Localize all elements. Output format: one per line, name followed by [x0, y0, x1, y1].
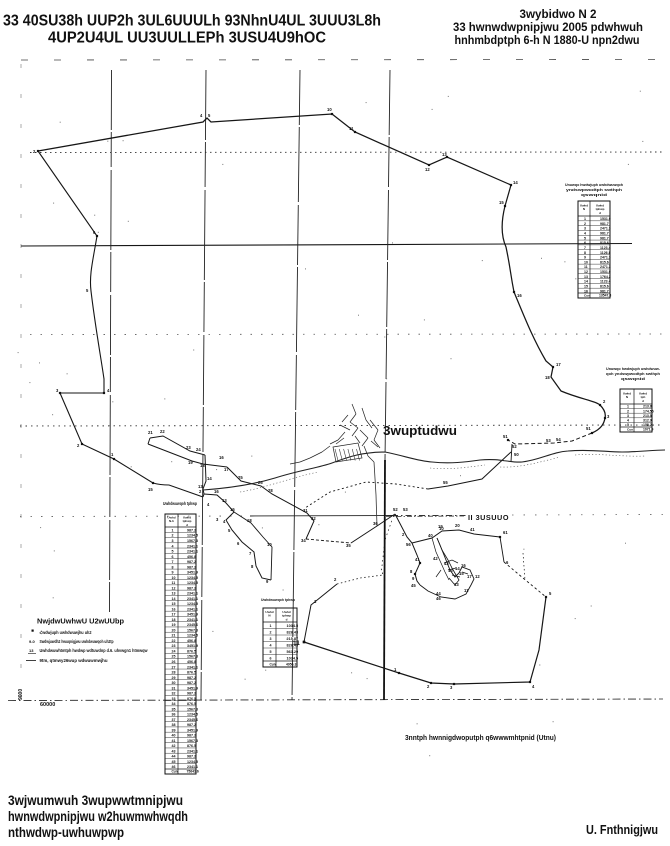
svg-text:41: 41 — [470, 527, 475, 532]
svg-text:23: 23 — [186, 445, 191, 450]
svg-text:158.2: 158.2 — [643, 423, 652, 427]
svg-text:13: 13 — [442, 152, 447, 157]
svg-text:26: 26 — [172, 660, 176, 664]
svg-text:987.2: 987.2 — [187, 755, 196, 759]
svg-text:45: 45 — [172, 760, 176, 764]
svg-text:5: 5 — [627, 423, 629, 427]
svg-text:1567.3: 1567.3 — [187, 628, 198, 632]
svg-text:N: N — [268, 614, 270, 618]
svg-text:9000: 9000 — [18, 689, 24, 700]
svg-text:11: 11 — [584, 265, 588, 269]
svg-text:15: 15 — [230, 507, 235, 512]
svg-text:12: 12 — [475, 574, 480, 579]
svg-text:13: 13 — [584, 275, 588, 279]
svg-text:2471.3: 2471.3 — [600, 265, 611, 269]
svg-text:6: 6 — [172, 555, 174, 559]
svg-text:3nntph hwnnigdwoputph q6wwwmht: 3nntph hwnnigdwoputph q6wwwmhtpnid (Utnu… — [405, 735, 556, 742]
svg-text:1234.5: 1234.5 — [187, 713, 198, 717]
svg-text:29: 29 — [172, 676, 176, 680]
svg-text:11: 11 — [172, 581, 176, 585]
svg-text:15: 15 — [584, 284, 588, 288]
svg-text:987.2: 987.2 — [187, 681, 196, 685]
svg-text:Uwhdwuwqoh tphwp: Uwhdwuwqoh tphwp — [163, 501, 197, 506]
svg-text:d: d — [599, 211, 601, 215]
svg-text:Cun: Cun — [172, 770, 178, 774]
svg-text:52: 52 — [512, 444, 517, 449]
svg-text:10: 10 — [584, 260, 588, 264]
svg-text:981.7: 981.7 — [600, 232, 609, 236]
svg-text:9-0: 9-0 — [29, 639, 36, 644]
svg-text:2341.1: 2341.1 — [187, 550, 198, 554]
svg-text:45: 45 — [411, 583, 416, 588]
svg-text:1234.5: 1234.5 — [187, 534, 198, 538]
svg-text:981.7: 981.7 — [600, 222, 609, 226]
svg-text:11: 11 — [349, 126, 354, 131]
svg-text:876.5: 876.5 — [187, 697, 196, 701]
svg-text:1: 1 — [172, 528, 174, 532]
svg-text:1: 1 — [584, 217, 586, 221]
svg-text:Unuwqo hwdwjuph uwhdwuw-: Unuwqo hwdwjuph uwhdwuw- — [606, 367, 660, 371]
svg-text:3451.9: 3451.9 — [187, 728, 198, 732]
svg-text:hwnwdwpnipjwu w2huwmwhwqdh: hwnwdwpnipjwu w2huwmwhwqdh — [8, 809, 188, 824]
svg-text:25: 25 — [172, 655, 176, 659]
svg-text:1: 1 — [270, 624, 272, 628]
svg-text:876.5: 876.5 — [187, 702, 196, 706]
svg-text:815.6: 815.6 — [600, 284, 609, 288]
svg-text:3451.9: 3451.9 — [187, 644, 198, 648]
svg-text:17: 17 — [172, 613, 176, 617]
svg-text:II 3USUUO: II 3USUUO — [468, 515, 509, 522]
svg-text:32: 32 — [311, 516, 316, 521]
svg-text:10: 10 — [327, 107, 332, 112]
svg-text:826.43: 826.43 — [287, 644, 299, 648]
svg-text:5: 5 — [172, 550, 174, 554]
svg-text:Cun: Cun — [627, 428, 633, 432]
svg-text:qoh yndswpwodtph swthph: qoh yndswpwodtph swthph — [606, 372, 660, 376]
svg-text:12: 12 — [425, 167, 430, 172]
svg-text:17: 17 — [467, 574, 472, 579]
svg-text:20: 20 — [455, 523, 460, 528]
svg-text:d: d — [186, 523, 188, 527]
svg-text:826.43: 826.43 — [287, 631, 299, 635]
svg-text:41: 41 — [415, 557, 420, 562]
svg-text:987.2: 987.2 — [187, 528, 196, 532]
svg-text:1126.8: 1126.8 — [600, 251, 611, 255]
svg-text:19: 19 — [188, 460, 193, 465]
svg-text:2341.1: 2341.1 — [187, 607, 198, 611]
svg-text:1034.5: 1034.5 — [287, 657, 299, 661]
svg-text:3451.9: 3451.9 — [187, 613, 198, 617]
svg-text:3wuptudwu: 3wuptudwu — [383, 423, 457, 438]
svg-text:5: 5 — [270, 650, 272, 654]
svg-text:1567.3: 1567.3 — [187, 539, 198, 543]
svg-text:5: 5 — [584, 236, 586, 240]
svg-text:1531.9: 1531.9 — [600, 217, 611, 221]
svg-text:3: 3 — [270, 637, 272, 641]
svg-text:U. Fnthnigjwu: U. Fnthnigjwu — [586, 822, 658, 837]
svg-text:456.8: 456.8 — [187, 660, 196, 664]
svg-text:30: 30 — [172, 681, 176, 685]
svg-text:4: 4 — [270, 644, 272, 648]
svg-text:1123.4: 1123.4 — [600, 246, 611, 250]
svg-text:33 hwnwdwpnipjwu 2005 pdwhwuh: 33 hwnwdwpnipjwu 2005 pdwhwuh — [453, 20, 643, 34]
svg-text:43: 43 — [444, 561, 449, 566]
svg-text:1234.5: 1234.5 — [187, 581, 198, 585]
svg-text:3: 3 — [627, 414, 629, 418]
svg-text:N-h: N-h — [169, 519, 174, 523]
svg-text:18: 18 — [545, 375, 550, 380]
svg-text:815.6: 815.6 — [600, 241, 609, 245]
svg-text:4: 4 — [584, 232, 586, 236]
svg-text:40: 40 — [172, 734, 176, 738]
svg-text:42: 42 — [433, 556, 438, 561]
svg-text:987.2: 987.2 — [187, 586, 196, 590]
svg-text:20: 20 — [172, 628, 176, 632]
svg-text:987.2: 987.2 — [187, 560, 196, 564]
svg-text:987.2: 987.2 — [187, 734, 196, 738]
svg-text:d: d — [286, 617, 288, 621]
svg-text:31: 31 — [303, 508, 308, 513]
svg-text:2341.1: 2341.1 — [187, 597, 198, 601]
svg-text:36: 36 — [172, 713, 176, 717]
svg-text:987.2: 987.2 — [187, 723, 196, 727]
svg-text:2341.1: 2341.1 — [187, 544, 198, 548]
svg-text:qswqnid: qswqnid — [581, 193, 607, 197]
svg-text:17: 17 — [224, 467, 229, 472]
svg-text:Swdwjuwdh2 hwuqnigjwu uwhdwuwq: Swdwjuwdh2 hwuqnigjwu uwhdwuwqoh uh2tp — [40, 639, 114, 644]
svg-text:22: 22 — [160, 429, 165, 434]
svg-text:18: 18 — [247, 518, 252, 523]
svg-text:16: 16 — [219, 455, 224, 460]
svg-text:Uwhdwuwqoh tphwp: Uwhdwuwqoh tphwp — [261, 597, 295, 602]
svg-text:Unuwqo hwdwjuph uwhdwuwqoh: Unuwqo hwdwjuph uwhdwuwqoh — [565, 183, 623, 187]
svg-text:35: 35 — [346, 543, 351, 548]
svg-text:16: 16 — [172, 607, 176, 611]
svg-text:18: 18 — [200, 463, 205, 468]
svg-text:18: 18 — [172, 618, 176, 622]
svg-text:24: 24 — [196, 447, 201, 452]
svg-text:215.87: 215.87 — [287, 637, 299, 641]
svg-text:d: d — [642, 399, 644, 403]
svg-text:2345.6: 2345.6 — [187, 718, 198, 722]
svg-text:31: 31 — [172, 686, 176, 690]
svg-text:13: 13 — [448, 568, 453, 573]
svg-text:2: 2 — [270, 631, 272, 635]
svg-text:56: 56 — [406, 542, 411, 547]
svg-text:24: 24 — [172, 649, 176, 653]
svg-text:37: 37 — [172, 718, 176, 722]
svg-text:N: N — [583, 207, 585, 211]
svg-text:456.8: 456.8 — [187, 639, 196, 643]
svg-text:3wybidwo N 2: 3wybidwo N 2 — [520, 7, 597, 21]
svg-text:15: 15 — [459, 571, 464, 576]
svg-text:51: 51 — [503, 434, 508, 439]
svg-text:1234.5: 1234.5 — [187, 576, 198, 580]
svg-text:876.5: 876.5 — [187, 744, 196, 748]
svg-text:13: 13 — [172, 592, 176, 596]
svg-text:12: 12 — [584, 270, 588, 274]
svg-text:28: 28 — [172, 671, 176, 675]
svg-text:44: 44 — [172, 755, 176, 759]
svg-text:1: 1 — [627, 405, 629, 409]
svg-text:46: 46 — [172, 765, 176, 769]
svg-text:7: 7 — [172, 560, 174, 564]
svg-text:Uwhdwuwhtmtph hwdwp wdtuwdnp d: Uwhdwuwhtmtph hwdwp wdtuwdnp d.6. uhvwgn… — [40, 648, 148, 653]
svg-text:22: 22 — [172, 639, 176, 643]
svg-text:981.7: 981.7 — [600, 236, 609, 240]
svg-text:1234.5: 1234.5 — [187, 760, 198, 764]
svg-text:987.2: 987.2 — [187, 676, 196, 680]
svg-text:14: 14 — [584, 280, 588, 284]
svg-text:23: 23 — [172, 644, 176, 648]
svg-text:3: 3 — [172, 539, 174, 543]
svg-text:9tm, qtmwy26wup wdwuwmwjhu: 9tm, qtmwy26wup wdwuwmwjhu — [40, 658, 108, 663]
svg-text:75641.6: 75641.6 — [187, 770, 199, 774]
svg-text:36: 36 — [373, 521, 378, 526]
svg-text:10: 10 — [172, 576, 176, 580]
svg-text:33 40SU38h UUP2h 3UL6UUULh 93N: 33 40SU38h UUP2h 3UL6UUULh 93NhnU4UL 3UU… — [3, 13, 381, 30]
svg-text:11: 11 — [464, 588, 469, 593]
svg-text:4UP2U4UL UU3UULLEPh 3USU4U9hOC: 4UP2U4UL UU3UULLEPh 3USU4U9hOC — [48, 30, 326, 47]
svg-text:54: 54 — [556, 437, 561, 442]
svg-text:32: 32 — [172, 692, 176, 696]
svg-text:15: 15 — [499, 200, 504, 205]
svg-text:51: 51 — [586, 426, 591, 431]
svg-text:53: 53 — [546, 438, 551, 443]
svg-text:34: 34 — [301, 538, 306, 543]
svg-text:174.56: 174.56 — [643, 409, 654, 413]
svg-text:987.2: 987.2 — [187, 692, 196, 696]
svg-text:NwjdwUwhwU U2wUUbp: NwjdwUwhwU U2wUUbp — [37, 619, 124, 626]
svg-text:33: 33 — [172, 697, 176, 701]
svg-text:815.6: 815.6 — [600, 260, 609, 264]
svg-text:19: 19 — [172, 623, 176, 627]
svg-text:2: 2 — [627, 409, 629, 413]
svg-text:50: 50 — [514, 452, 519, 457]
svg-text:15: 15 — [148, 487, 153, 492]
svg-text:40: 40 — [428, 533, 433, 538]
svg-text:14: 14 — [207, 476, 212, 481]
svg-text:2341.1: 2341.1 — [187, 592, 198, 596]
svg-text:Cun: Cun — [584, 294, 590, 298]
svg-text:2341.1: 2341.1 — [187, 665, 198, 669]
svg-text:3451.9: 3451.9 — [187, 571, 198, 575]
svg-text:16: 16 — [517, 293, 522, 298]
svg-text:1567.3: 1567.3 — [187, 707, 198, 711]
svg-text:16: 16 — [461, 563, 466, 568]
svg-text:15: 15 — [172, 602, 176, 606]
svg-text:213.8: 213.8 — [643, 414, 652, 418]
svg-text:2: 2 — [172, 534, 174, 538]
svg-text:1764.2: 1764.2 — [600, 275, 611, 279]
svg-text:6: 6 — [584, 241, 586, 245]
svg-text:1123.4: 1123.4 — [600, 280, 611, 284]
svg-text:10: 10 — [439, 526, 444, 531]
svg-text:14: 14 — [172, 597, 176, 601]
svg-text:876.5: 876.5 — [187, 649, 196, 653]
svg-text:35: 35 — [172, 707, 176, 711]
svg-text:8: 8 — [584, 251, 586, 255]
svg-text:16: 16 — [214, 489, 219, 494]
svg-text:1234.5: 1234.5 — [187, 602, 198, 606]
svg-text:39: 39 — [172, 728, 176, 732]
svg-text:42: 42 — [172, 744, 176, 748]
svg-text:43: 43 — [172, 749, 176, 753]
svg-text:2471.3: 2471.3 — [600, 256, 611, 260]
svg-text:52: 52 — [393, 507, 398, 512]
svg-text:3: 3 — [584, 227, 586, 231]
svg-text:Cun: Cun — [270, 662, 276, 666]
svg-text:3wjwumwuh 3wupwwtmnipjwu: 3wjwumwuh 3wupwwtmnipjwu — [8, 793, 183, 808]
svg-text:2345.6: 2345.6 — [187, 623, 198, 627]
svg-text:213.8: 213.8 — [643, 405, 652, 409]
svg-text:13: 13 — [222, 498, 227, 503]
svg-text:7: 7 — [584, 246, 586, 250]
svg-text:2: 2 — [584, 222, 586, 226]
svg-text:1034.5: 1034.5 — [287, 624, 299, 628]
svg-text:27: 27 — [172, 665, 176, 669]
svg-text:9: 9 — [172, 571, 174, 575]
svg-text:1071.9: 1071.9 — [643, 428, 653, 432]
svg-text:1567.3: 1567.3 — [187, 739, 198, 743]
svg-text:25: 25 — [238, 475, 243, 480]
svg-text:13: 13 — [29, 648, 34, 653]
svg-text:876.5: 876.5 — [187, 671, 196, 675]
svg-text:38: 38 — [172, 723, 176, 727]
svg-text:28: 28 — [268, 488, 273, 493]
svg-text:8: 8 — [172, 565, 174, 569]
svg-text:2341.1: 2341.1 — [187, 618, 198, 622]
svg-text:46: 46 — [436, 596, 441, 601]
svg-text:13547.8: 13547.8 — [599, 294, 611, 298]
svg-text:55: 55 — [443, 480, 448, 485]
svg-text:61: 61 — [503, 530, 508, 535]
svg-text:53: 53 — [403, 507, 408, 512]
svg-text:17: 17 — [556, 362, 561, 367]
svg-text:nthwdwp-uwhuwpwp: nthwdwp-uwhuwpwp — [8, 825, 124, 840]
svg-text:3451.9: 3451.9 — [187, 686, 198, 690]
svg-text:2471.3: 2471.3 — [600, 227, 611, 231]
svg-text:6: 6 — [270, 657, 272, 661]
svg-text:4956.3: 4956.3 — [286, 662, 296, 666]
svg-text:2341.1: 2341.1 — [187, 765, 198, 769]
svg-text:312.9: 312.9 — [643, 418, 652, 422]
svg-text:4: 4 — [172, 544, 174, 548]
svg-text:21: 21 — [148, 430, 153, 435]
svg-text:12: 12 — [172, 586, 176, 590]
svg-text:26: 26 — [258, 480, 263, 485]
svg-text:41: 41 — [172, 739, 176, 743]
svg-text:60000: 60000 — [40, 702, 55, 708]
svg-text:N: N — [626, 395, 628, 399]
svg-text:563.29: 563.29 — [287, 650, 299, 654]
svg-text:21: 21 — [172, 634, 176, 638]
svg-text:34: 34 — [172, 702, 176, 706]
svg-text:Հwdwjuph uwhdwuwjhu uh2: Հwdwjuph uwhdwuwjhu uh2 — [40, 630, 92, 635]
svg-text:hnhmbdptph 6-h N 1880-U npn2dw: hnhmbdptph 6-h N 1880-U npn2dwu — [455, 33, 640, 47]
svg-text:456.8: 456.8 — [187, 555, 196, 559]
svg-text:10: 10 — [267, 542, 272, 547]
svg-text:yndswpwodtph swthph: yndswpwodtph swthph — [566, 188, 622, 192]
svg-text:1567.3: 1567.3 — [187, 655, 198, 659]
svg-text:14: 14 — [513, 180, 518, 185]
svg-text:9: 9 — [584, 256, 586, 260]
svg-text:987.2: 987.2 — [187, 565, 196, 569]
svg-text:4: 4 — [627, 418, 629, 422]
svg-text:1234.5: 1234.5 — [187, 634, 198, 638]
svg-text:13: 13 — [454, 582, 459, 587]
svg-text:2341.1: 2341.1 — [187, 749, 198, 753]
svg-text:qswqnid: qswqnid — [621, 377, 645, 381]
svg-text:1531.9: 1531.9 — [600, 270, 611, 274]
